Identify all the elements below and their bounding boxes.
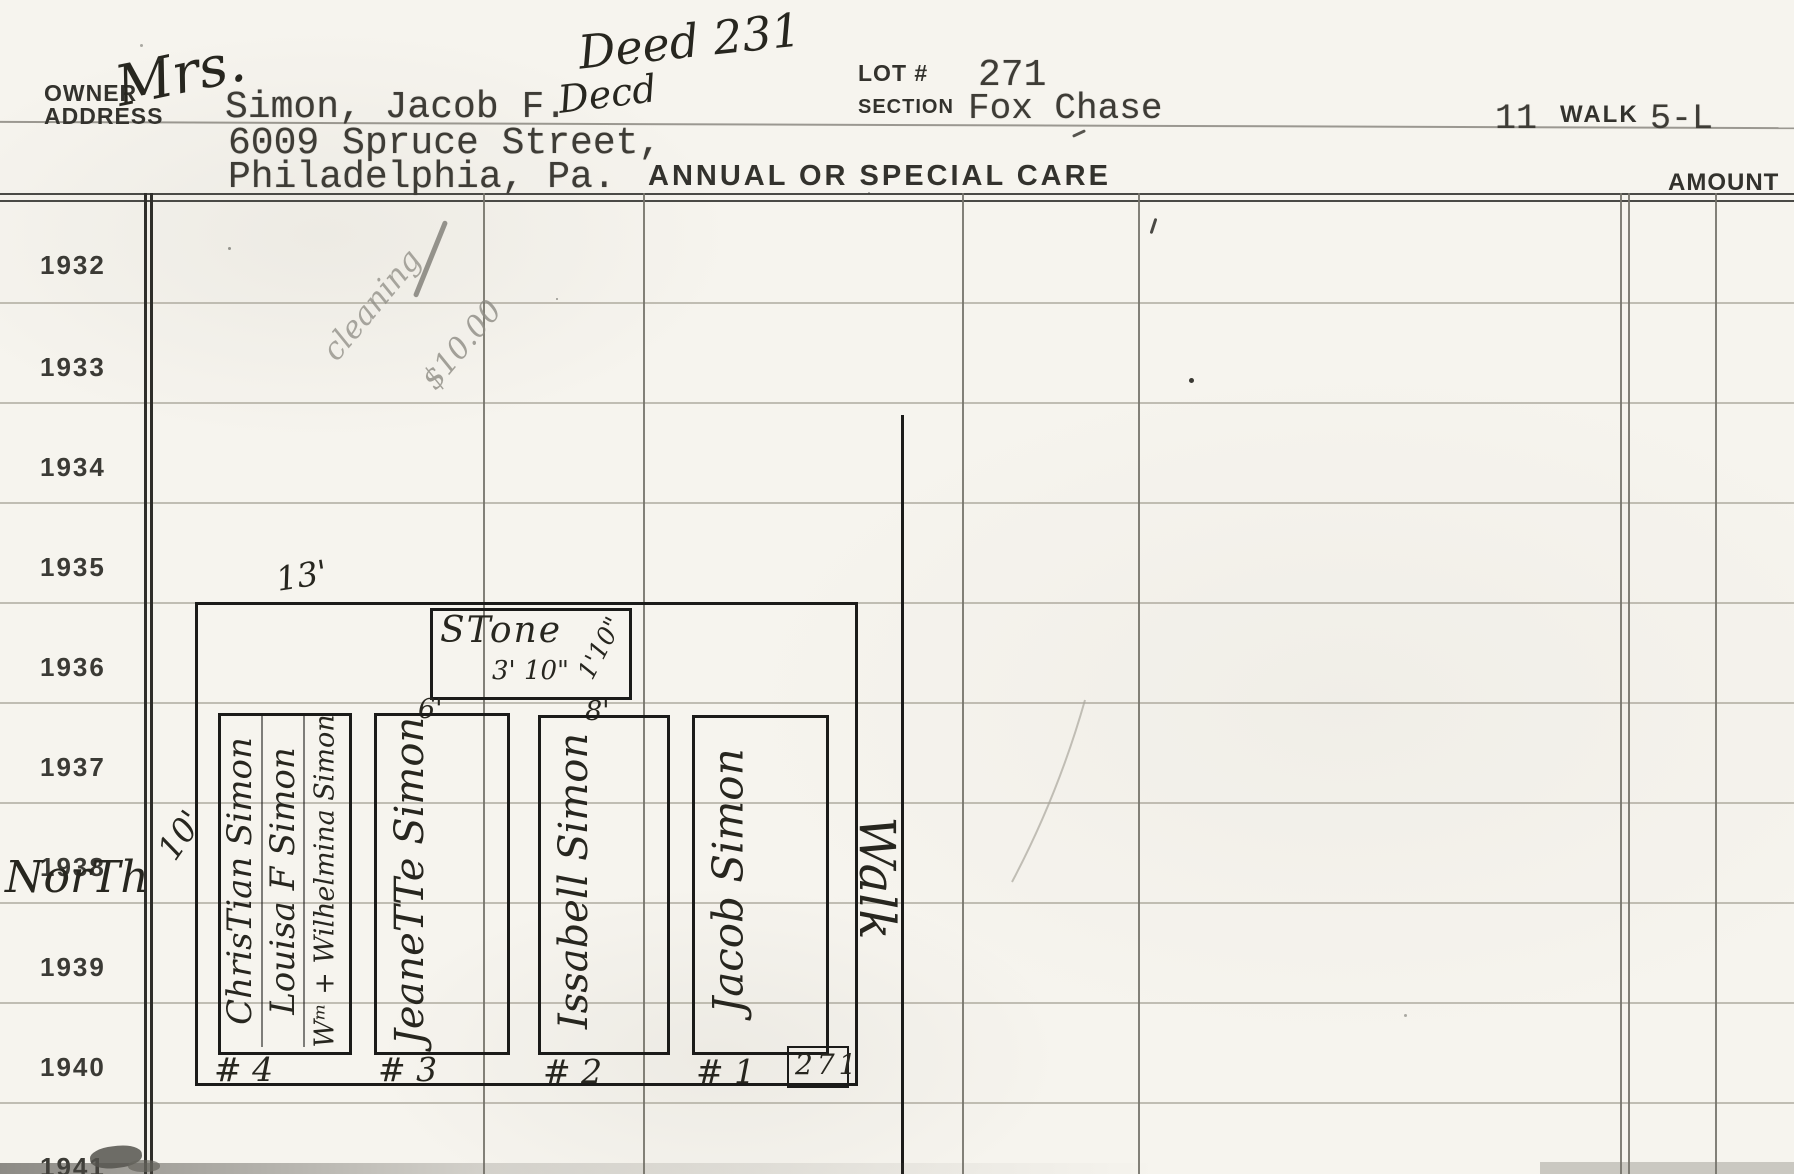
paper-speck bbox=[556, 298, 558, 300]
stone-label: STone bbox=[440, 610, 562, 651]
paper-speck bbox=[1404, 1014, 1407, 1017]
plot-4-number: # 4 bbox=[214, 1050, 273, 1089]
ledger-row-line bbox=[0, 302, 1794, 304]
plot-4-name-2: Louisa F Simon bbox=[263, 747, 303, 1015]
amount-label: AMOUNT bbox=[1668, 169, 1779, 197]
ledger-margin-line bbox=[144, 193, 147, 1174]
plot-4-name-1: ChrisTian Simon bbox=[220, 737, 260, 1025]
lot-number-box-value: 271 bbox=[795, 1048, 860, 1081]
header-separator-line bbox=[0, 200, 1794, 202]
plot-3-number: # 3 bbox=[378, 1050, 437, 1089]
pencil-note-line1: cleaning bbox=[315, 242, 429, 368]
scan-edge-shadow bbox=[1540, 1162, 1794, 1174]
year-label: 1939 bbox=[40, 952, 136, 983]
plot-4-lane-divider bbox=[303, 715, 305, 1047]
stone-width-dimension: 3' 10" bbox=[492, 656, 569, 686]
year-label: 1937 bbox=[40, 752, 136, 783]
plot-1-name: Jacob Simon bbox=[704, 748, 753, 1013]
plot-2-name: Issabell Simon bbox=[551, 733, 597, 1029]
ink-speck bbox=[1189, 378, 1194, 383]
year-label: 1934 bbox=[40, 452, 136, 483]
plot-4-name-3: Wᵐ + Wilhelmina Simon bbox=[310, 714, 341, 1047]
year-label: 1933 bbox=[40, 352, 136, 383]
pencil-note-line2: $10.00 bbox=[415, 294, 509, 397]
section-label: SECTION bbox=[858, 96, 954, 119]
paper-speck bbox=[228, 247, 231, 250]
year-label: 1935 bbox=[40, 552, 136, 583]
walk-handwriting: Walk bbox=[848, 816, 906, 939]
plot-1-number: # 1 bbox=[696, 1052, 755, 1091]
ledger-column-line bbox=[1715, 193, 1717, 1174]
ledger-row-line bbox=[0, 402, 1794, 404]
paper-speck bbox=[158, 58, 162, 61]
care-title: ANNUAL OR SPECIAL CARE bbox=[648, 160, 1111, 193]
plot-3-name: JeaneTTe Simon bbox=[387, 717, 433, 1045]
ledger-column-line bbox=[962, 193, 964, 1174]
scan-smudge bbox=[128, 1160, 160, 1172]
section-value: Fox Chase bbox=[968, 88, 1162, 129]
plot-2-number: # 2 bbox=[543, 1052, 602, 1091]
scan-edge-shadow bbox=[0, 1163, 1220, 1174]
pen-tick-mark bbox=[1072, 129, 1086, 138]
address-line-2: Philadelphia, Pa. bbox=[228, 156, 616, 199]
year-label: 1940 bbox=[40, 1052, 136, 1083]
north-handwriting: NorTh bbox=[5, 852, 149, 903]
year-label: 1932 bbox=[40, 250, 136, 281]
lot-width-dimension: 13' bbox=[273, 552, 330, 599]
paper-speck bbox=[140, 44, 143, 47]
ledger-margin-line bbox=[150, 193, 153, 1174]
walk-boundary-line bbox=[901, 415, 904, 1174]
paper-speck bbox=[868, 192, 870, 194]
ledger-row-line bbox=[0, 1102, 1794, 1104]
walk-left-value: 11 bbox=[1495, 99, 1537, 139]
pencil-curve-stroke bbox=[990, 690, 1110, 900]
year-label: 1936 bbox=[40, 652, 136, 683]
record-card: OWNER ADDRESS Mrs. Simon, Jacob F. Decd … bbox=[0, 0, 1794, 1174]
ledger-column-line bbox=[1138, 193, 1140, 1174]
deed-note-handwriting: Deed 231 bbox=[576, 2, 804, 79]
ledger-column-line bbox=[1628, 193, 1630, 1174]
ledger-column-line bbox=[1620, 193, 1622, 1174]
ledger-row-line bbox=[0, 502, 1794, 504]
walk-right-value: 5-L bbox=[1650, 99, 1713, 139]
pen-tick-mark bbox=[1150, 218, 1158, 234]
walk-label: WALK bbox=[1560, 101, 1639, 129]
lot-label: LOT # bbox=[858, 60, 928, 87]
